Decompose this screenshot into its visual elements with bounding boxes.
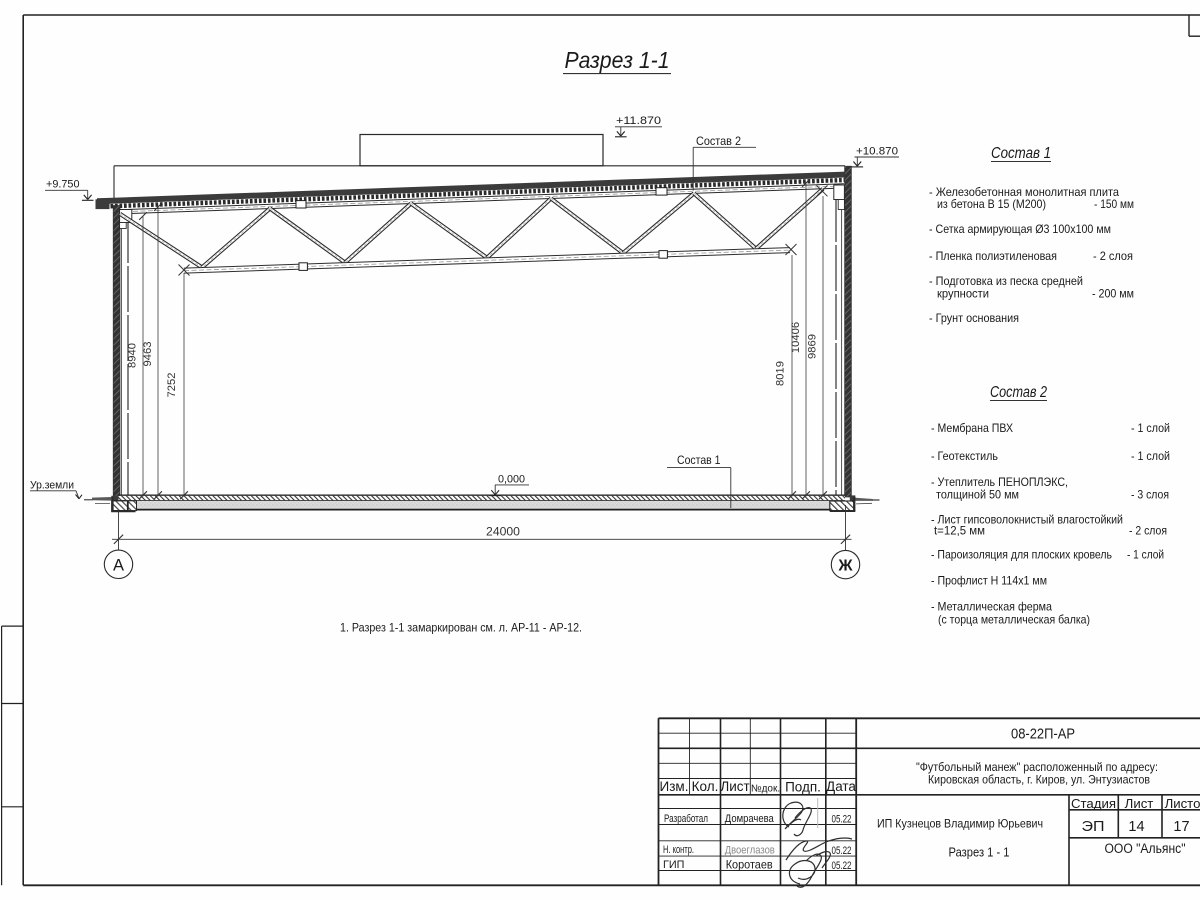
svg-text:- Металлическая ферма: - Металлическая ферма <box>931 600 1052 614</box>
svg-text:Домрачева: Домрачева <box>725 813 775 825</box>
svg-text:Ур.земли: Ур.земли <box>30 480 74 492</box>
svg-text:Коротаев: Коротаев <box>726 859 773 872</box>
svg-text:ЭП: ЭП <box>1082 819 1105 835</box>
svg-text:Разрез 1 - 1: Разрез 1 - 1 <box>949 846 1010 860</box>
svg-text:+10.870: +10.870 <box>856 145 898 157</box>
svg-text:Дата: Дата <box>826 779 856 794</box>
svg-text:14: 14 <box>1128 819 1144 835</box>
svg-text:Двоеглазов: Двоеглазов <box>725 845 775 857</box>
svg-text:(с торца металлическая балка): (с торца металлическая балка) <box>938 613 1090 627</box>
svg-text:Подп.: Подп. <box>785 780 821 795</box>
svg-text:- Геотекстиль: - Геотекстиль <box>931 449 998 463</box>
svg-text:- 2 слоя: - 2 слоя <box>1129 524 1167 538</box>
svg-text:05.22: 05.22 <box>832 814 852 826</box>
svg-text:10406: 10406 <box>790 322 802 353</box>
svg-text:- Профлист Н 114х1 мм: - Профлист Н 114х1 мм <box>931 574 1047 588</box>
svg-text:Н. контр.: Н. контр. <box>663 844 694 856</box>
svg-text:7252: 7252 <box>166 373 178 398</box>
svg-text:крупности: крупности <box>937 287 989 301</box>
svg-text:- Пленка полиэтиленовая: - Пленка полиэтиленовая <box>929 249 1057 263</box>
svg-text:Листов: Листов <box>1165 796 1200 811</box>
svg-text:ГИП: ГИП <box>663 859 684 871</box>
svg-text:толщиной 50 мм: толщиной 50 мм <box>936 488 1019 502</box>
svg-text:Состав 1: Состав 1 <box>991 145 1051 162</box>
svg-text:9869: 9869 <box>807 334 819 359</box>
svg-text:8019: 8019 <box>775 361 787 386</box>
svg-text:Лист: Лист <box>1125 796 1154 811</box>
svg-text:Стадия: Стадия <box>1071 796 1116 811</box>
svg-text:из бетона В 15 (М200): из бетона В 15 (М200) <box>937 197 1046 211</box>
svg-text:05.22: 05.22 <box>832 845 852 857</box>
svg-text:- 1 слой: - 1 слой <box>1131 449 1170 463</box>
svg-text:Кировская область, г. Киров, у: Кировская область, г. Киров, ул. Энтузиа… <box>928 773 1150 787</box>
svg-text:Состав 1: Состав 1 <box>677 453 721 467</box>
svg-text:Разработал: Разработал <box>664 813 708 825</box>
svg-text:- 3 слоя: - 3 слоя <box>1131 488 1169 502</box>
svg-text:0,000: 0,000 <box>498 473 525 485</box>
svg-text:- 200 мм: - 200 мм <box>1092 287 1134 301</box>
svg-text:05.22: 05.22 <box>832 860 852 872</box>
svg-text:t=12,5 мм: t=12,5 мм <box>934 524 985 538</box>
svg-text:Кол.: Кол. <box>692 779 719 794</box>
svg-text:- Пароизоляция для плоских кро: - Пароизоляция для плоских кровель <box>931 548 1112 562</box>
svg-text:17: 17 <box>1173 819 1189 835</box>
svg-text:- 1 слой: - 1 слой <box>1127 548 1164 562</box>
svg-text:ИП Кузнецов Владимир Юрьевич: ИП Кузнецов Владимир Юрьевич <box>877 817 1043 831</box>
svg-text:Состав 2: Состав 2 <box>696 134 741 148</box>
svg-text:ООО "Альянс": ООО "Альянс" <box>1105 841 1186 857</box>
svg-text:Изм.: Изм. <box>660 779 689 794</box>
svg-text:№док.: №док. <box>751 784 780 795</box>
svg-text:- 150 мм: - 150 мм <box>1094 197 1134 211</box>
svg-text:+9.750: +9.750 <box>46 179 80 191</box>
svg-text:9463: 9463 <box>142 342 154 367</box>
svg-text:1. Разрез 1-1 замаркирован см.: 1. Разрез 1-1 замаркирован см. л. АР-11 … <box>340 621 582 635</box>
svg-text:- 2 слоя: - 2 слоя <box>1093 249 1133 263</box>
svg-text:Лист: Лист <box>720 779 749 794</box>
svg-text:- 1 слой: - 1 слой <box>1131 421 1170 435</box>
svg-text:- Грунт основания: - Грунт основания <box>929 311 1019 325</box>
svg-text:+11.870: +11.870 <box>616 115 661 127</box>
svg-text:24000: 24000 <box>486 525 520 539</box>
svg-text:А: А <box>113 556 124 574</box>
svg-text:8940: 8940 <box>127 343 139 368</box>
svg-text:Ж: Ж <box>837 558 853 575</box>
svg-text:08-22П-АР: 08-22П-АР <box>1011 727 1075 743</box>
svg-text:- Сетка армирующая Ø3 100х100: - Сетка армирующая Ø3 100х100 мм <box>929 222 1111 236</box>
svg-text:Разрез 1-1: Разрез 1-1 <box>565 47 670 73</box>
svg-text:- Мембрана ПВХ: - Мембрана ПВХ <box>931 421 1013 435</box>
svg-text:Состав 2: Состав 2 <box>990 384 1047 401</box>
